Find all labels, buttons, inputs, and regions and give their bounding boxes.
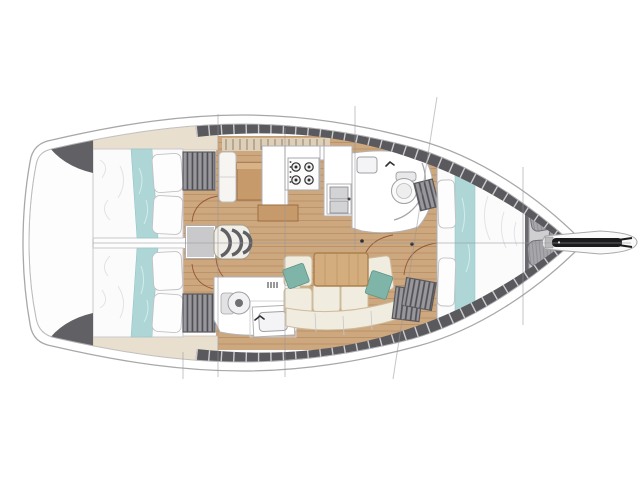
sideboard (258, 205, 298, 221)
pillow (152, 251, 183, 290)
landing (186, 226, 215, 258)
washbasin (259, 311, 288, 331)
fridge-cabinet (262, 146, 288, 212)
pillow (152, 195, 183, 234)
pillow (152, 153, 184, 193)
door-stop (360, 239, 364, 243)
washbasin (357, 157, 377, 173)
sink-icon (327, 184, 351, 214)
settee-cushion (313, 284, 340, 312)
toilet-icon (221, 292, 250, 314)
stove-icon (288, 158, 319, 190)
pillow (437, 180, 456, 229)
wardrobe-locker (402, 278, 436, 311)
pillow (437, 258, 456, 307)
hanging-locker (183, 294, 215, 332)
hanging-locker (183, 152, 215, 190)
pillow (152, 293, 184, 333)
saloon-table (314, 253, 368, 286)
yacht-layout-plan (0, 0, 640, 480)
